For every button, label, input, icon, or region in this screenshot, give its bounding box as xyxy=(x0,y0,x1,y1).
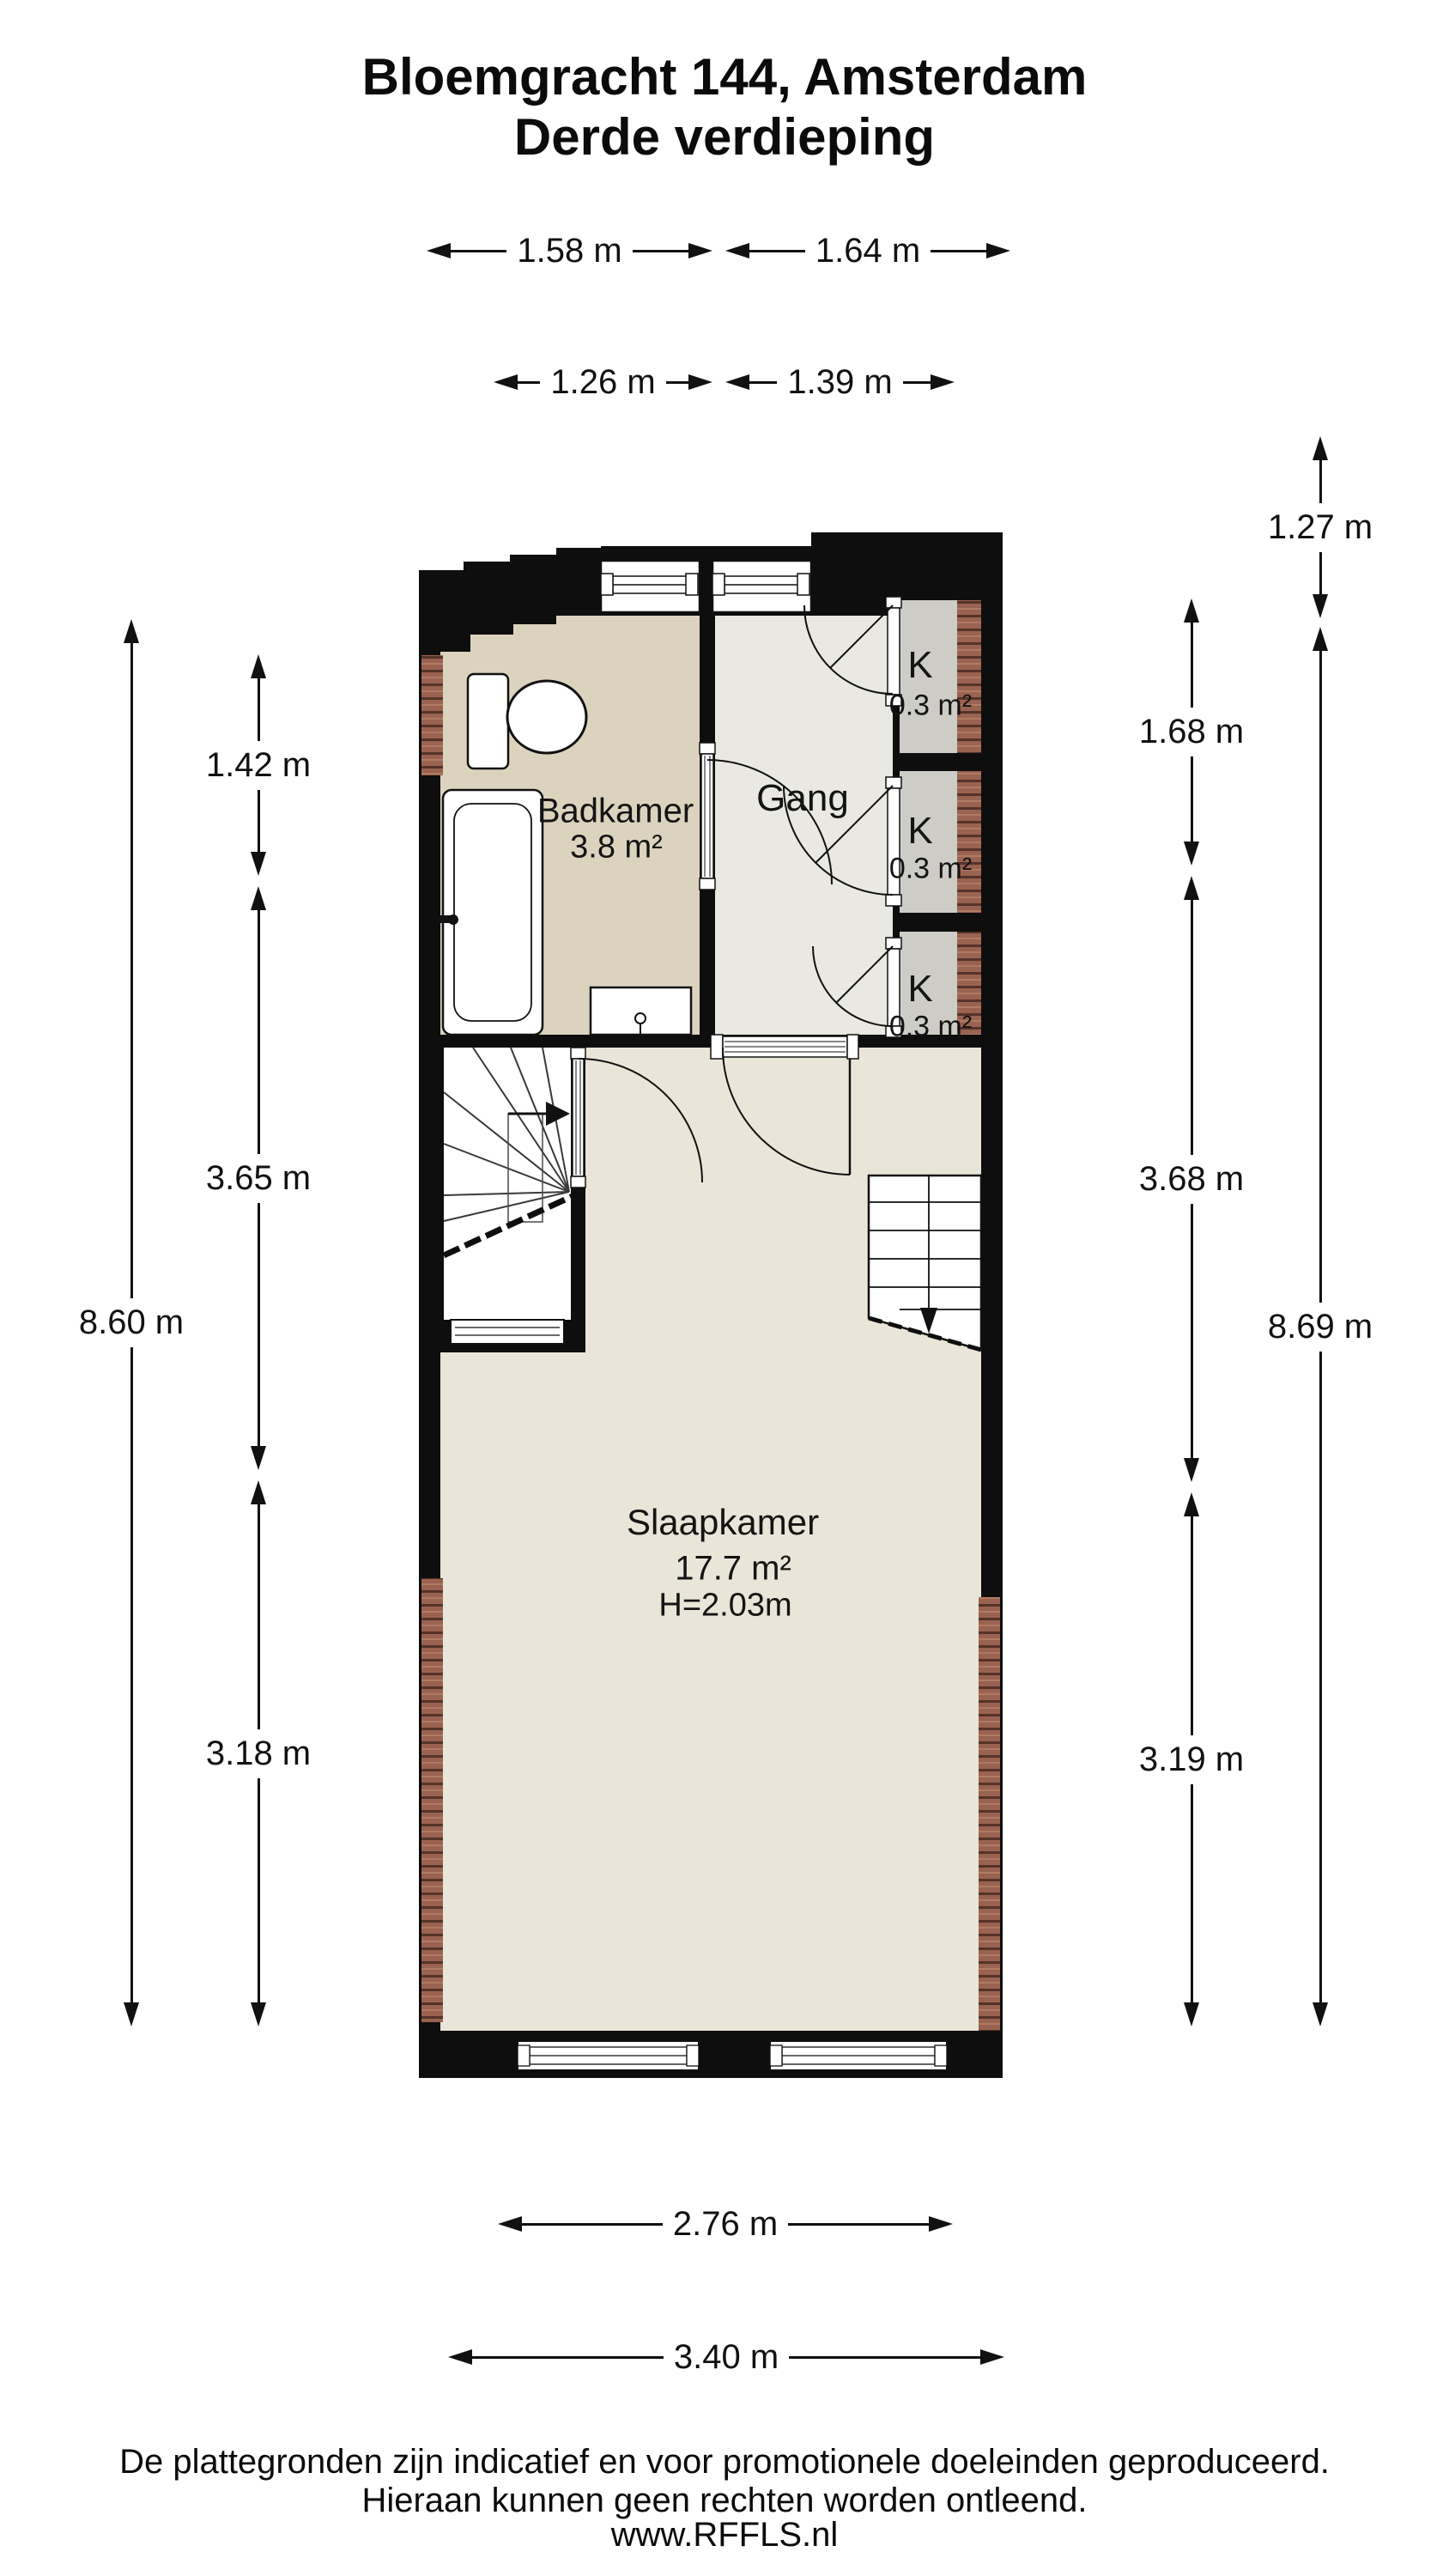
stairwell-floor xyxy=(444,1048,571,1320)
arrow-left-icon xyxy=(494,374,518,390)
footer-disclaimer-2: Hieraan kunnen geen rechten worden ontle… xyxy=(0,2482,1449,2520)
dim-label: 1.68 m xyxy=(1136,708,1247,756)
room-area-closet-2: 0.3 m² xyxy=(889,853,972,886)
arrow-down-icon xyxy=(251,1446,266,1470)
arrow-up-icon xyxy=(251,886,266,910)
bathtub-icon xyxy=(440,790,543,1035)
dim-label: 1.58 m xyxy=(506,232,632,270)
arrow-up-icon xyxy=(251,1480,266,1504)
dim-left-seg-3: 3.18 m xyxy=(194,1480,323,2026)
arrow-up-icon xyxy=(124,619,139,643)
window-top-gang xyxy=(712,561,811,612)
arrow-right-icon xyxy=(929,2216,953,2232)
staircase-down xyxy=(869,1176,981,1350)
arrow-right-icon xyxy=(986,243,1010,258)
room-label-closet-1: K xyxy=(907,644,932,687)
dim-right-seg-2: 3.68 m xyxy=(1127,876,1256,1482)
page-title-address: Bloemgracht 144, Amsterdam xyxy=(0,47,1449,106)
dim-label: 3.65 m xyxy=(203,1154,314,1203)
dim-right-total: 8.69 m xyxy=(1256,627,1385,2026)
dim-left-total: 8.60 m xyxy=(67,619,196,2026)
room-area-closet-3: 0.3 m² xyxy=(889,1011,972,1044)
dim-label: 1.27 m xyxy=(1264,503,1376,552)
room-area-closet-1: 0.3 m² xyxy=(889,690,972,723)
room-label-closet-3: K xyxy=(907,968,932,1011)
dim-label: 3.19 m xyxy=(1136,1735,1247,1784)
footer-disclaimer-1: De plattegronden zijn indicatief en voor… xyxy=(0,2443,1449,2482)
arrow-down-icon xyxy=(124,2002,139,2026)
arrow-down-icon xyxy=(251,852,266,876)
window-stairwell xyxy=(451,1320,564,1344)
room-area-badkamer: 3.8 m² xyxy=(570,829,663,866)
window-bottom-right xyxy=(770,2041,947,2070)
dim-label: 1.42 m xyxy=(203,741,314,790)
room-area-slaapkamer: 17.7 m² xyxy=(675,1550,791,1589)
arrow-left-icon xyxy=(725,243,749,258)
arrow-down-icon xyxy=(1184,841,1199,866)
dim-label: 1.64 m xyxy=(805,232,931,270)
room-label-closet-2: K xyxy=(907,810,932,853)
dim-top-2-left: 1.26 m xyxy=(494,358,712,406)
arrow-right-icon xyxy=(688,243,712,258)
arrow-down-icon xyxy=(1313,594,1328,618)
arrow-up-icon xyxy=(1184,598,1199,623)
arrow-left-icon xyxy=(448,2349,472,2365)
footer-website: www.RFFLS.nl xyxy=(0,2516,1449,2555)
dim-right-top: 1.27 m xyxy=(1256,436,1385,618)
floorplan-page: Bloemgracht 144, Amsterdam Derde verdiep… xyxy=(0,0,1449,2576)
arrow-down-icon xyxy=(1313,2002,1328,2026)
arrow-up-icon xyxy=(1184,876,1199,900)
arrow-up-icon xyxy=(1313,436,1328,460)
room-height-slaapkamer: H=2.03m xyxy=(658,1588,791,1625)
dim-label: 3.68 m xyxy=(1136,1155,1247,1204)
arrow-left-icon xyxy=(725,374,749,390)
dim-left-seg-1: 1.42 m xyxy=(194,654,323,876)
dim-top-2-right: 1.39 m xyxy=(725,358,955,406)
arrow-right-icon xyxy=(980,2349,1004,2365)
dim-right-seg-3: 3.19 m xyxy=(1127,1492,1256,2026)
arrow-up-icon xyxy=(1313,627,1328,651)
arrow-down-icon xyxy=(1184,2002,1199,2026)
dim-bottom-2: 3.40 m xyxy=(448,2333,1004,2381)
dim-label: 1.39 m xyxy=(777,363,902,402)
dim-label: 3.18 m xyxy=(203,1729,314,1778)
dim-right-seg-1: 1.68 m xyxy=(1127,598,1256,866)
dim-bottom-1: 2.76 m xyxy=(498,2200,953,2248)
dim-label: 8.60 m xyxy=(76,1298,187,1347)
dim-label: 8.69 m xyxy=(1264,1303,1376,1352)
window-top-badkamer xyxy=(601,561,700,612)
arrow-left-icon xyxy=(498,2216,522,2232)
arrow-up-icon xyxy=(251,654,266,678)
dim-top-1-right: 1.64 m xyxy=(725,227,1010,275)
dim-label: 2.76 m xyxy=(663,2205,788,2244)
room-label-gang: Gang xyxy=(756,777,849,820)
arrow-up-icon xyxy=(1184,1492,1199,1516)
dim-top-1-left: 1.58 m xyxy=(427,227,712,275)
arrow-left-icon xyxy=(427,243,451,258)
sink-icon xyxy=(591,987,691,1035)
room-label-badkamer: Badkamer xyxy=(537,793,694,831)
dim-label: 3.40 m xyxy=(664,2338,789,2377)
window-pier xyxy=(700,546,712,612)
arrow-right-icon xyxy=(688,374,712,390)
room-label-slaapkamer: Slaapkamer xyxy=(627,1502,819,1543)
floorplan-drawing xyxy=(419,532,1003,2078)
dim-left-seg-2: 3.65 m xyxy=(194,886,323,1470)
arrow-down-icon xyxy=(251,2002,266,2026)
page-title-floor: Derde verdieping xyxy=(0,107,1449,167)
arrow-down-icon xyxy=(1184,1458,1199,1482)
arrow-right-icon xyxy=(931,374,955,390)
window-bottom-left xyxy=(518,2041,699,2070)
dim-label: 1.26 m xyxy=(540,363,665,402)
